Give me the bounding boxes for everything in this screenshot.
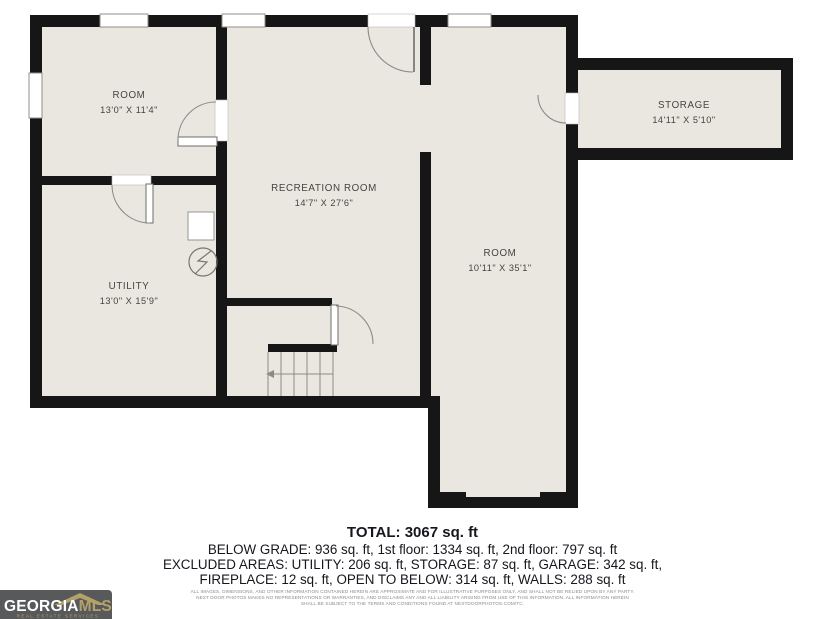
wall-divider-rec-room-upper [420, 27, 431, 85]
disclaimer: ALL IMAGES, DIMENSIONS, AND OTHER INFORM… [0, 589, 825, 608]
logo-tagline: REAL ESTATE SERVICES [17, 614, 100, 619]
disclaimer-line: SHALL BE SUBJECT TO THE TERMS AND CONDIT… [0, 601, 825, 607]
georgia-mls-logo-svg: GEORGIAMLS REAL ESTATE SERVICES [0, 590, 112, 619]
wall-storage-right [781, 58, 793, 160]
wall-bottom-main [30, 396, 440, 408]
room-dims: 10'11" X 35'1" [468, 263, 531, 273]
wall-stair-lower [268, 344, 337, 352]
total-area-text: TOTAL: 3067 sq. ft [0, 524, 825, 542]
room-dims: 13'0" X 11'4" [100, 105, 158, 115]
wall-divider-left-rooms [216, 15, 227, 397]
logo-wordmark: GEORGIAMLS [4, 598, 112, 615]
room-dims: 14'11" X 5'10" [652, 115, 715, 125]
room-dims: 14'7" X 27'6" [295, 198, 353, 208]
logo-text-georgia: GEORGIA [4, 598, 79, 615]
excluded-area-text-2: FIREPLACE: 12 sq. ft, OPEN TO BELOW: 314… [0, 572, 825, 587]
door-opening [368, 14, 415, 27]
wall-divider-rec-room-lower [420, 152, 431, 397]
appliance-square-icon [188, 212, 214, 240]
window-symbol [222, 14, 265, 27]
window-symbol [100, 14, 148, 27]
wall-storage-bottom [566, 148, 793, 160]
area-summary: TOTAL: 3067 sq. ft BELOW GRADE: 936 sq. … [0, 524, 825, 588]
door-opening [215, 100, 228, 141]
floor-garage [428, 396, 578, 508]
floors-area-text: BELOW GRADE: 936 sq. ft, 1st floor: 1334… [0, 542, 825, 557]
door-opening [112, 175, 151, 185]
window-symbol [29, 73, 42, 118]
georgia-mls-logo: GEORGIAMLS REAL ESTATE SERVICES [0, 590, 112, 619]
logo-text-mls: MLS [79, 598, 112, 615]
door-opening [565, 93, 579, 124]
wall-garage-bottom-mid [428, 497, 578, 508]
door-leaf [178, 137, 217, 146]
room-dims: 13'0" X 15'9" [100, 296, 158, 306]
wall-storage-top [566, 58, 793, 70]
room-label: ROOM [484, 248, 517, 259]
floorplan-page: ROOM 13'0" X 11'4" RECREATION ROOM 14'7"… [0, 0, 825, 619]
window-symbol [448, 14, 491, 27]
room-label: UTILITY [109, 281, 150, 292]
room-label: STORAGE [658, 100, 710, 111]
door-leaf [331, 305, 338, 345]
room-label: RECREATION ROOM [271, 183, 377, 194]
door-leaf [146, 184, 153, 223]
wall-garage-left [428, 396, 440, 508]
wall-stair-upper [225, 298, 332, 306]
floorplan-svg: ROOM 13'0" X 11'4" RECREATION ROOM 14'7"… [0, 0, 825, 520]
room-label: ROOM [113, 90, 146, 101]
excluded-area-text: EXCLUDED AREAS: UTILITY: 206 sq. ft, STO… [0, 557, 825, 572]
wall-right [566, 15, 578, 508]
floor-areas [30, 15, 793, 508]
